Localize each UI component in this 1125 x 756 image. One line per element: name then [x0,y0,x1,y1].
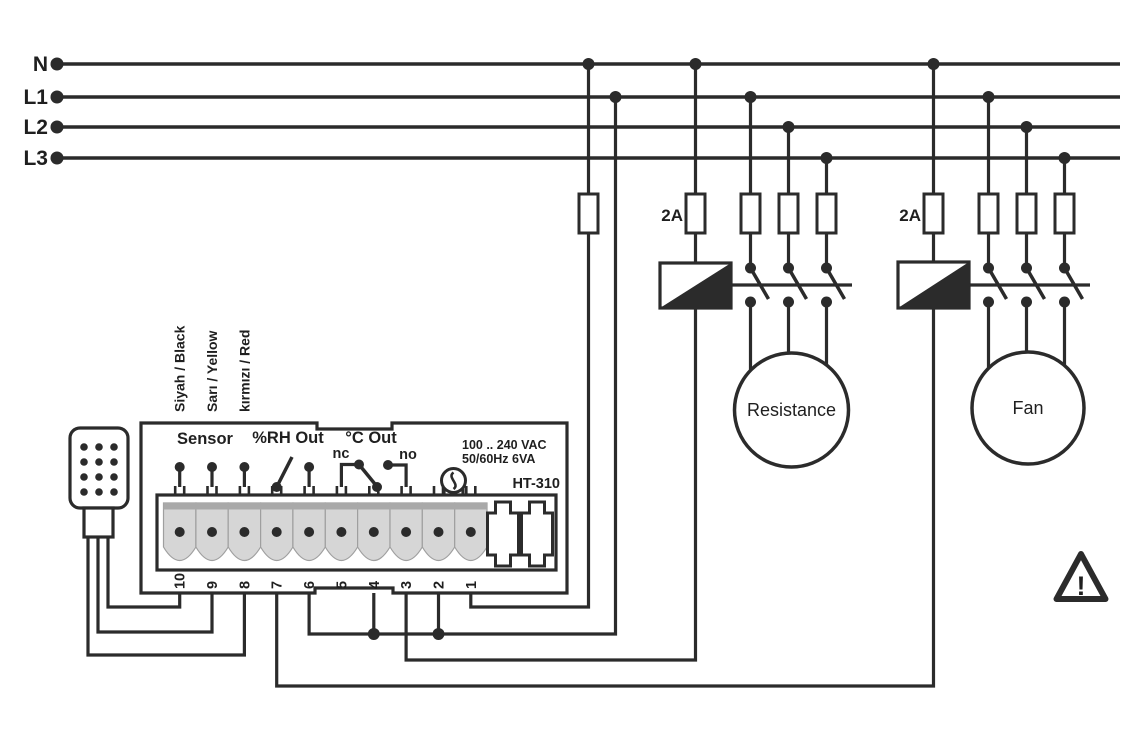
warning-exclamation: ! [1077,571,1086,601]
power-bus: N L1 L2 L3 [23,53,1120,170]
svg-text:4: 4 [367,581,383,589]
bus-label-n: N [33,53,48,76]
svg-text:2: 2 [432,581,448,589]
svg-text:1: 1 [464,581,480,589]
fuse-icon-f2 [1017,194,1036,233]
supply-rating-line1: 100 .. 240 VAC [462,438,547,452]
bus-label-l1: L1 [23,86,48,109]
model-label: HT-310 [512,476,560,492]
fan-fuse-label: 2A [899,206,921,225]
wiring-diagram: N L1 L2 L3 2A [0,0,1125,756]
fuse-icon-r2 [779,194,798,233]
svg-text:3: 3 [399,581,415,589]
bus-endpoint-n [51,58,64,71]
svg-text:6: 6 [302,581,318,589]
fan-load-label: Fan [1012,398,1043,418]
cable-label-red: kırmızı / Red [236,330,252,412]
fuse-icon-f1 [979,194,998,233]
connector-mount-posts [488,502,553,566]
svg-text:8: 8 [237,581,253,589]
svg-text:5: 5 [334,581,350,589]
temp-out-label: °C Out [345,429,397,447]
fuse-icon-fan-coil [924,194,943,233]
fuse-icon-resistance-coil [686,194,705,233]
resistance-load-label: Resistance [747,400,836,420]
sensor-stem [84,508,113,537]
schematic-canvas: N L1 L2 L3 2A [0,0,1125,756]
fuse-icon-supply [579,194,598,233]
bus-endpoint-l2 [51,121,64,134]
fuse-icon-r1 [741,194,760,233]
warning-icon: ! [1057,554,1106,601]
junction-terminal2 [433,628,445,640]
svg-text:7: 7 [270,581,286,589]
bus-junction-dots [583,58,1071,164]
cable-label-yellow: Sarı / Yellow [204,330,220,412]
svg-text:9: 9 [205,581,221,589]
junction-terminal4 [368,628,380,640]
no-label: no [399,447,417,463]
supply-rating-line2: 50/60Hz 6VA [462,452,535,466]
fuse-icon-r3 [817,194,836,233]
svg-text:10: 10 [173,573,189,589]
controller-ht310: Sensor %RH Out °C Out nc no 100 .. 240 V… [141,423,567,593]
ac-supply-icon [442,469,466,497]
nc-label: nc [333,446,350,462]
bus-label-l2: L2 [23,116,48,139]
resistance-fuse-label: 2A [661,206,683,225]
bus-endpoint-l3 [51,152,64,165]
rh-out-label: %RH Out [252,429,324,447]
fuse-icon-f3 [1055,194,1074,233]
cable-label-black: Siyah / Black [172,325,188,412]
sensor-head-icon [70,428,128,508]
bus-endpoint-l1 [51,91,64,104]
bus-label-l3: L3 [23,147,48,170]
terminal-strip [164,503,488,510]
sensor-section-label: Sensor [177,430,234,448]
